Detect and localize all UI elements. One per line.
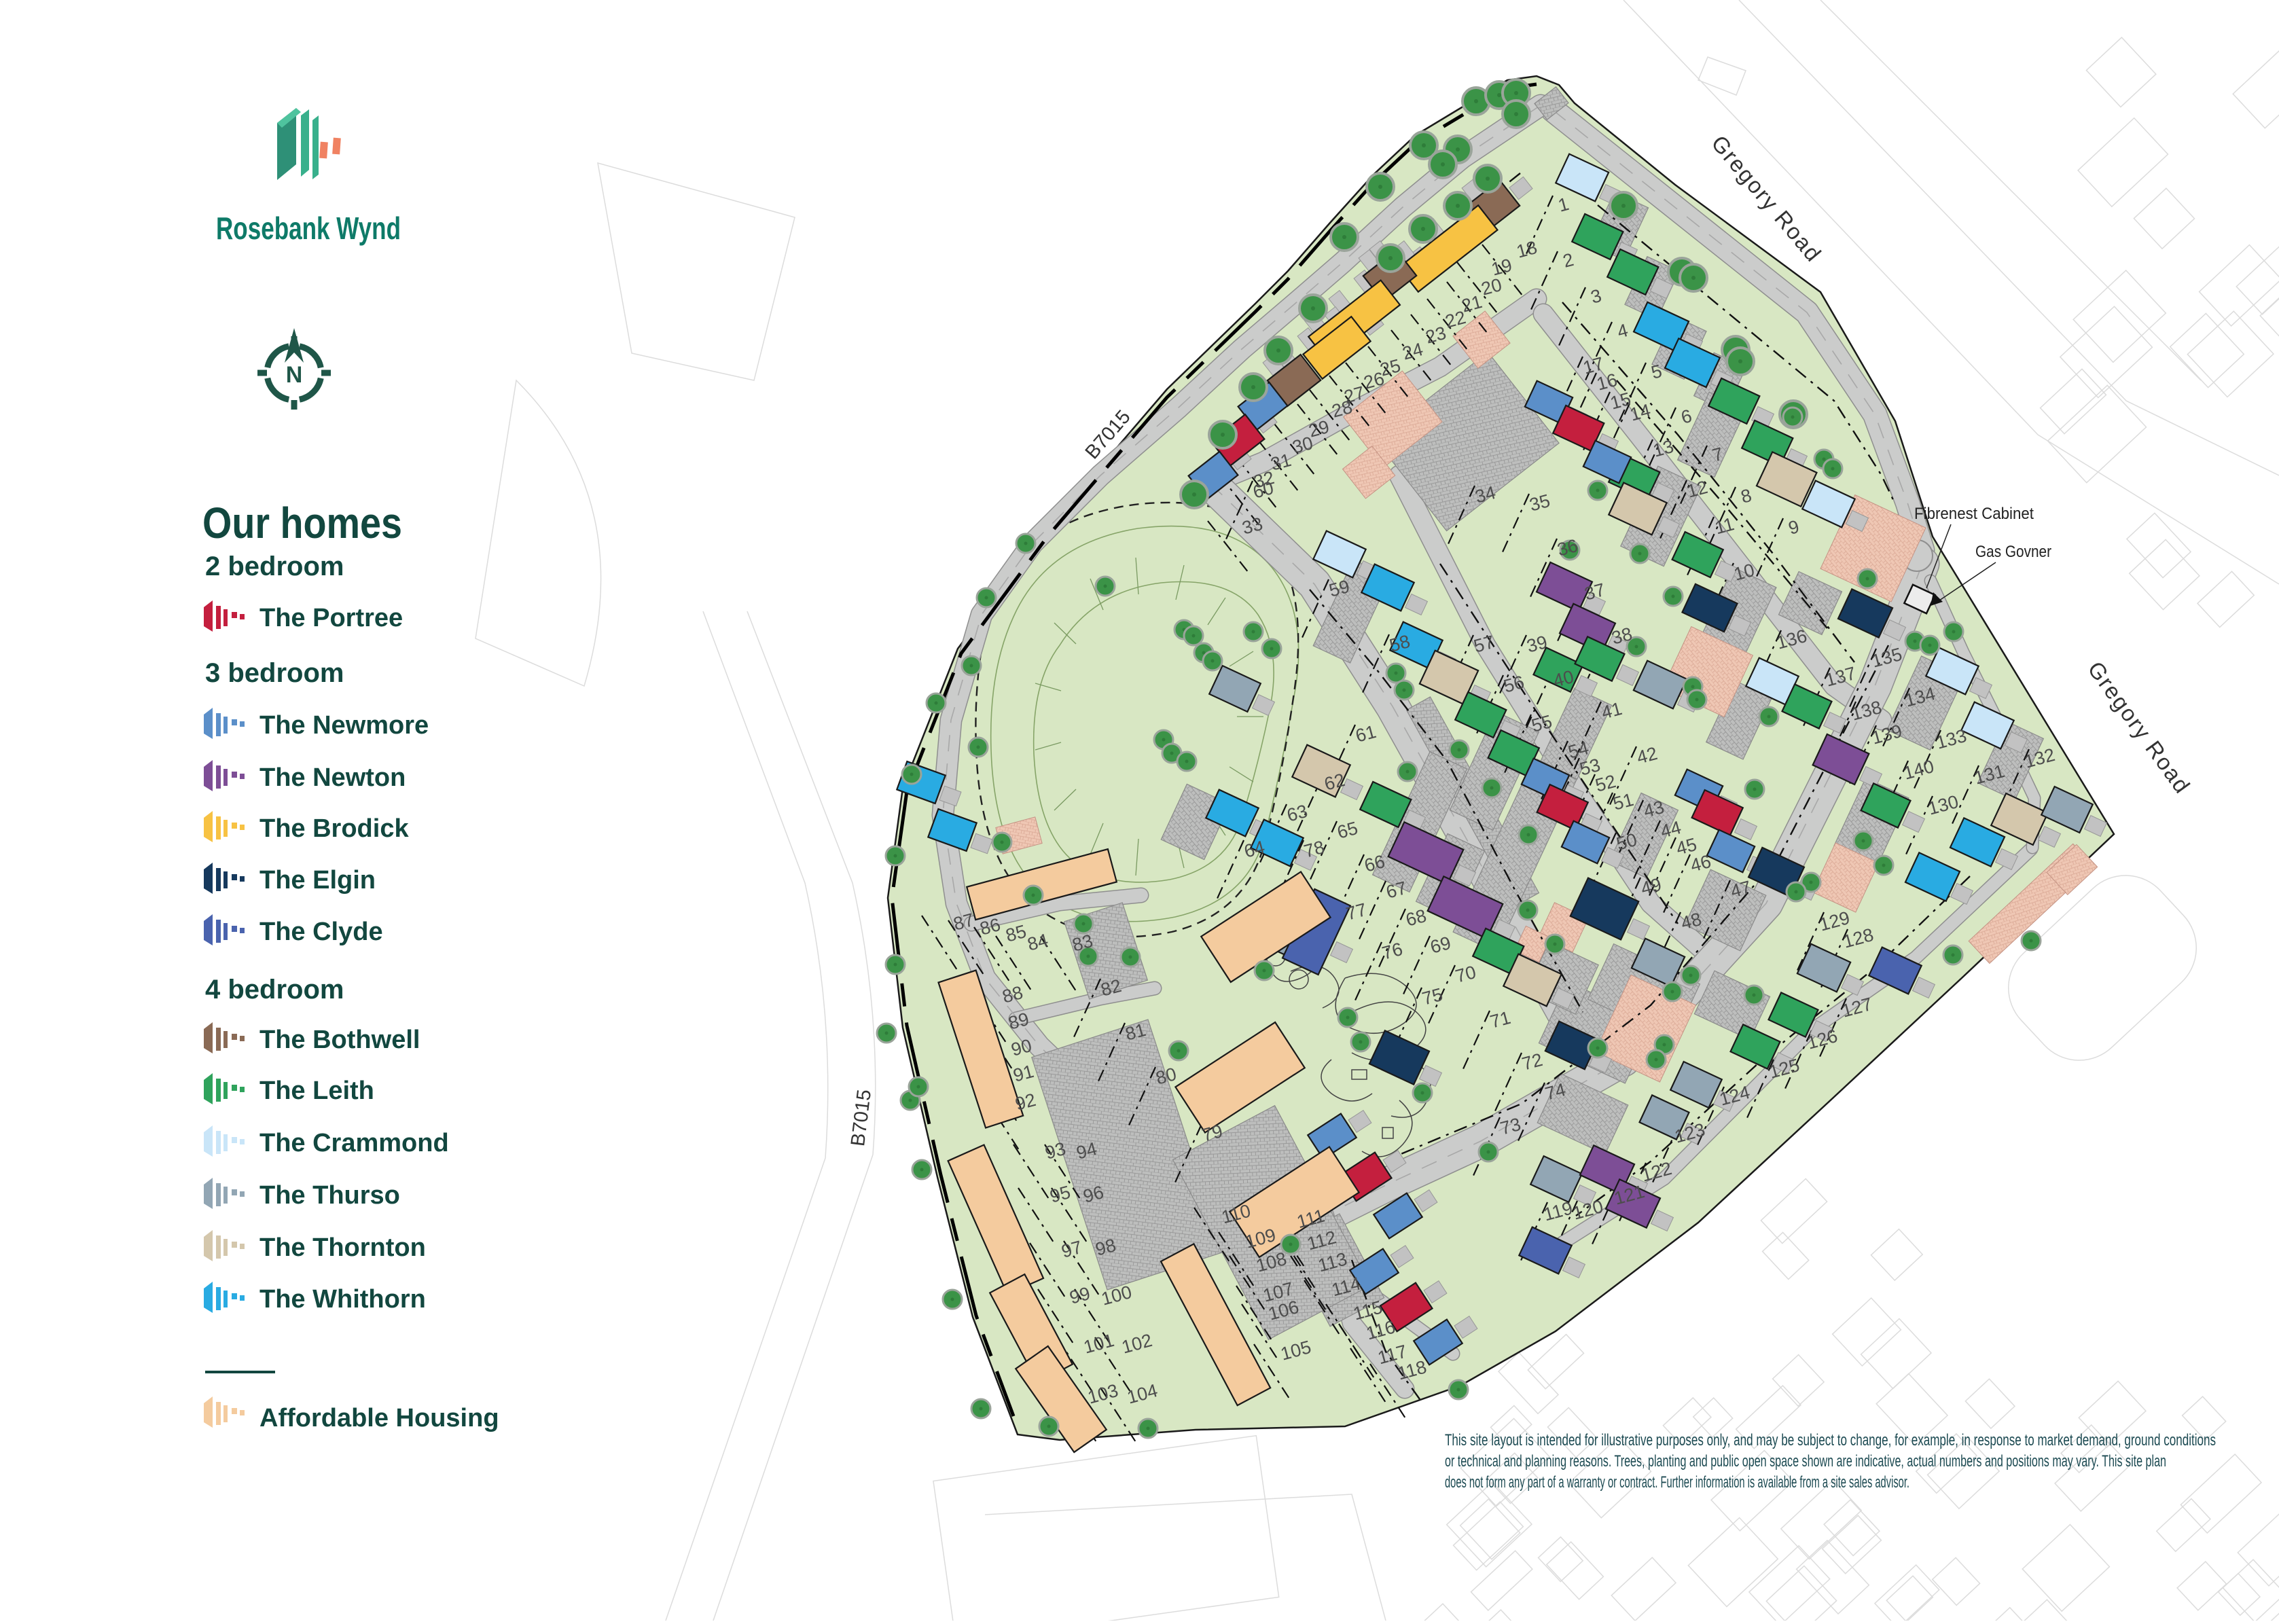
svg-text:The Elgin: The Elgin [259, 866, 376, 895]
svg-text:The Bothwell: The Bothwell [259, 1026, 420, 1054]
svg-text:Affordable Housing: Affordable Housing [259, 1404, 499, 1432]
svg-text:does not form any part of a wa: does not form any part of a warranty or … [1445, 1473, 1909, 1492]
svg-text:3 bedroom: 3 bedroom [205, 658, 344, 688]
svg-text:The Brodick: The Brodick [259, 814, 409, 843]
svg-text:The Thornton: The Thornton [259, 1233, 426, 1262]
svg-text:N: N [286, 362, 303, 388]
svg-text:Gas Govner: Gas Govner [1975, 543, 2051, 561]
svg-text:The Newmore: The Newmore [259, 711, 429, 740]
svg-text:The Crammond: The Crammond [259, 1129, 449, 1157]
svg-text:The Thurso: The Thurso [259, 1181, 400, 1210]
svg-text:2 bedroom: 2 bedroom [205, 552, 344, 581]
svg-text:The Newton: The Newton [259, 763, 406, 792]
svg-text:The Leith: The Leith [259, 1077, 374, 1105]
svg-text:This site layout is intended f: This site layout is intended for illustr… [1445, 1431, 2216, 1449]
svg-text:Rosebank Wynd: Rosebank Wynd [216, 211, 401, 246]
svg-text:The Whithorn: The Whithorn [259, 1285, 426, 1314]
svg-text:Our homes: Our homes [202, 499, 402, 547]
svg-text:Fibrenest Cabinet: Fibrenest Cabinet [1914, 505, 2034, 523]
svg-text:The Portree: The Portree [259, 604, 403, 632]
svg-text:4 bedroom: 4 bedroom [205, 975, 344, 1005]
svg-text:or technical and planning reas: or technical and planning reasons. Trees… [1445, 1452, 2166, 1470]
svg-text:The Clyde: The Clyde [259, 918, 383, 946]
